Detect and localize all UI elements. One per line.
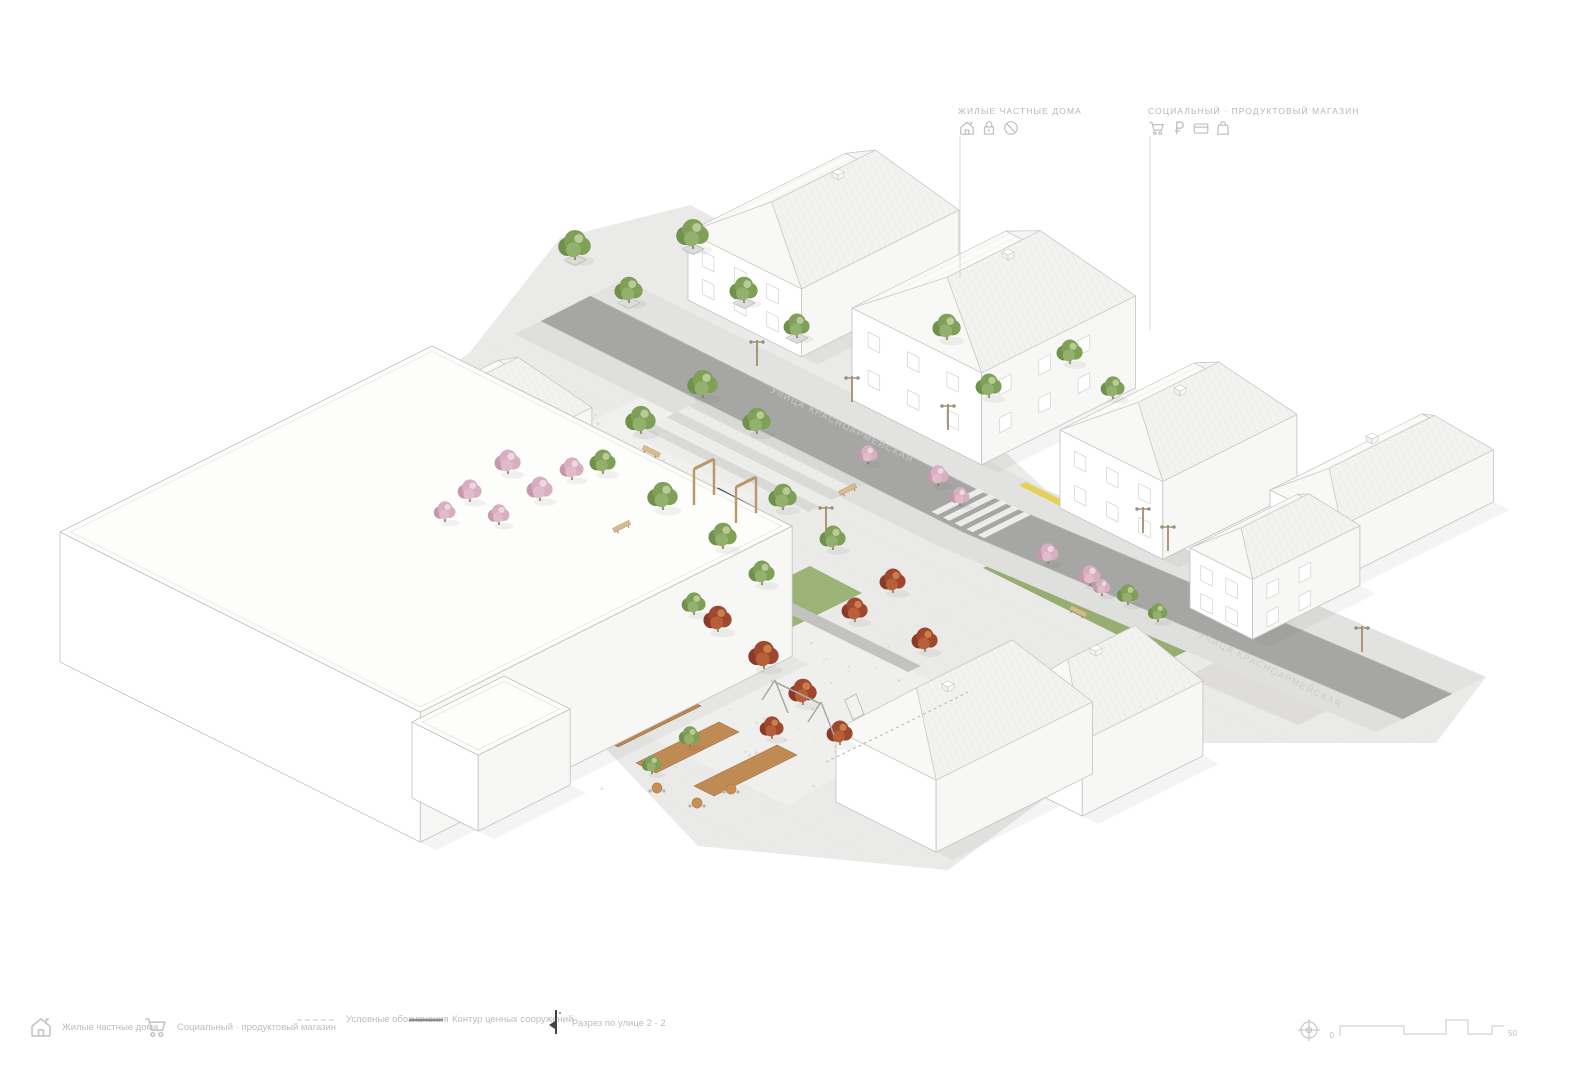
legend-bar: Жилые частные дома Социальный · продукто… [0,1006,1580,1050]
shopping-cart-icon [143,1014,169,1040]
site-plan-axonometric: УЛИЦА КРАСНОАРМЕЙСКАЯУЛИЦА КРАСНОАРМЕЙСК… [0,0,1580,1080]
section-mark-icon [548,1008,564,1038]
solid-line-icon [408,1015,444,1025]
house-icon [958,119,976,137]
ruble-icon [1170,119,1188,137]
lock-icon [980,119,998,137]
bank-card-icon [1192,119,1210,137]
shopping-cart-icon [1148,119,1166,137]
legend-label: Разрез по улице 2 - 2 [572,1018,666,1029]
annotation-grocery-icons [1148,119,1360,137]
drawing-sheet: УЛИЦА КРАСНОАРМЕЙСКАЯУЛИЦА КРАСНОАРМЕЙСК… [0,0,1580,1080]
house-icon [28,1014,54,1040]
annotation-grocery: СОЦИАЛЬНЫЙ · ПРОДУКТОВЫЙ МАГАЗИН [1148,106,1360,137]
legend-item-residential: Жилые частные дома [28,1014,158,1040]
annotation-residential-label: ЖИЛЫЕ ЧАСТНЫЕ ДОМА [958,106,1082,116]
annotation-residential-icons [958,119,1082,137]
no-entry-icon [1002,119,1020,137]
dashed-line-icon [296,1015,338,1025]
legend-item-section: Разрез по улице 2 - 2 [548,1008,666,1038]
annotation-residential: ЖИЛЫЕ ЧАСТНЫЕ ДОМА [958,106,1082,137]
shopping-bag-icon [1214,119,1232,137]
annotation-grocery-label: СОЦИАЛЬНЫЙ · ПРОДУКТОВЫЙ МАГАЗИН [1148,106,1360,116]
